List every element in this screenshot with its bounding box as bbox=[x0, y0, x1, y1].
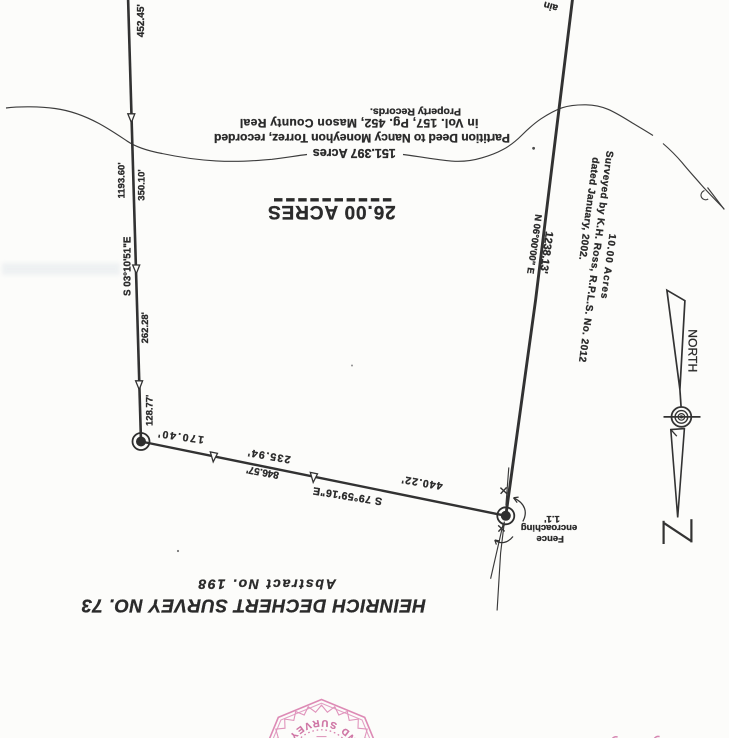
svg-text:452.45': 452.45' bbox=[136, 4, 147, 37]
svg-text:Property Records.: Property Records. bbox=[370, 105, 461, 117]
svg-text:350.10': 350.10' bbox=[137, 169, 148, 200]
svg-text:26.00 ACRES: 26.00 ACRES bbox=[267, 201, 396, 222]
svg-text:262.28': 262.28' bbox=[140, 312, 151, 343]
svg-text:NORTH: NORTH bbox=[686, 329, 700, 372]
svg-text:1193.60': 1193.60' bbox=[117, 162, 128, 198]
svg-text:151.397 Acres: 151.397 Acres bbox=[313, 146, 396, 160]
svg-text:Fence: Fence bbox=[536, 533, 563, 544]
svg-text:128.77': 128.77' bbox=[145, 395, 156, 426]
svg-text:HEINRICH DECHERT SURVEY NO. 73: HEINRICH DECHERT SURVEY NO. 73 bbox=[81, 596, 426, 617]
svg-text:S 03°10'51"E: S 03°10'51"E bbox=[123, 236, 134, 296]
svg-text:Abstract No. 198: Abstract No. 198 bbox=[197, 576, 337, 592]
svg-text:Partition Deed to Nancy Moneyh: Partition Deed to Nancy Moneyhon Torrez,… bbox=[214, 131, 510, 145]
svg-text:1.1': 1.1' bbox=[544, 513, 559, 524]
